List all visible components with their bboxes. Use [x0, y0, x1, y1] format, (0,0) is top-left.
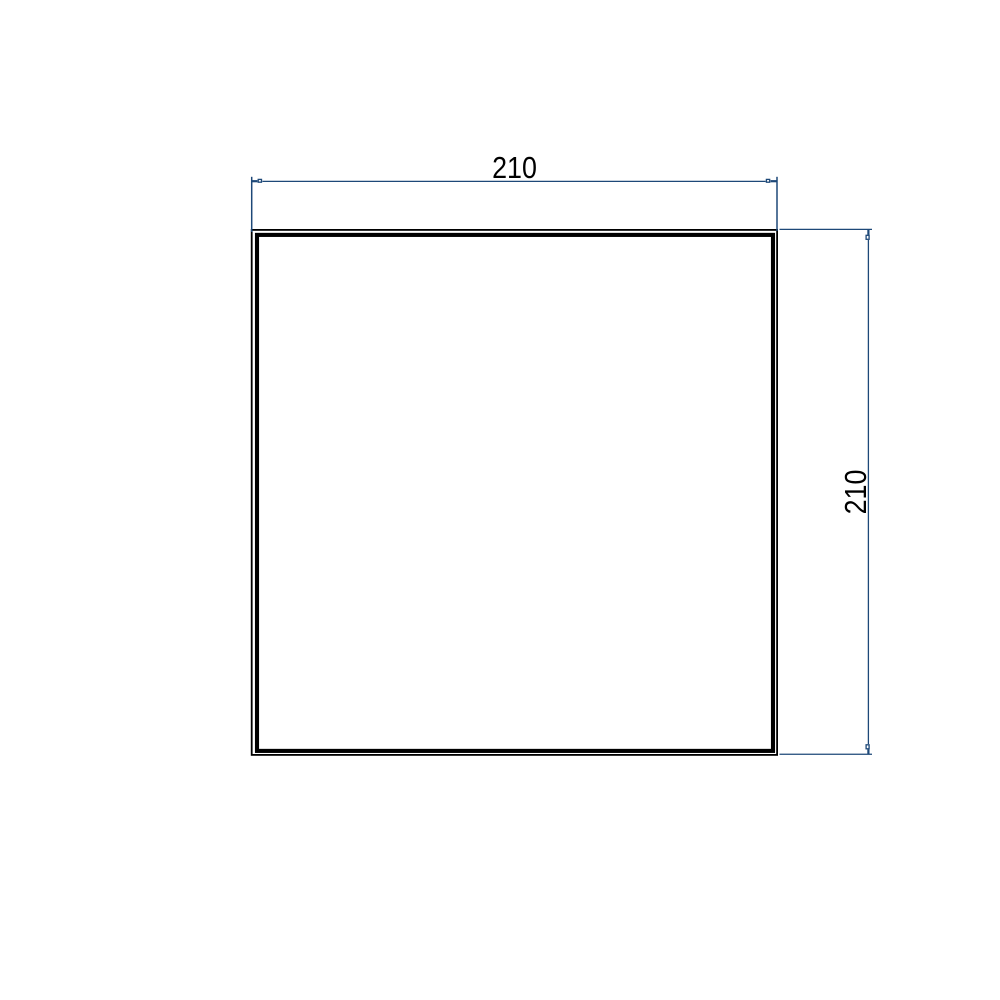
- svg-text:210: 210: [492, 151, 537, 185]
- svg-text:210: 210: [839, 470, 873, 515]
